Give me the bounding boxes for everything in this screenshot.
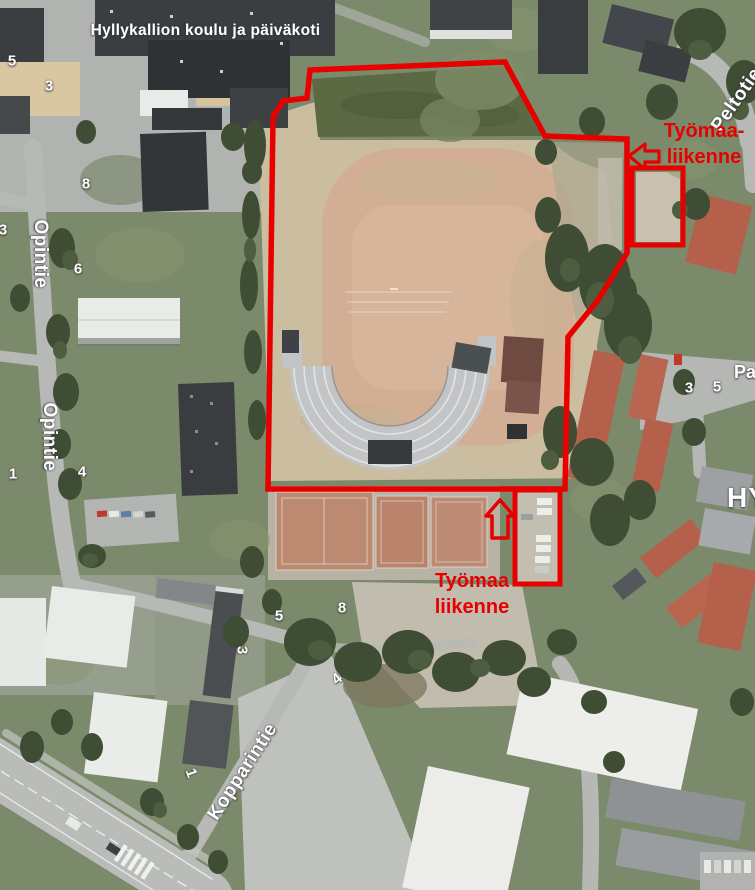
site-boundary-outline [268, 62, 627, 489]
staging-area-outline [632, 168, 683, 245]
construction-annotations [0, 0, 755, 890]
arrow-left-icon [629, 144, 659, 169]
arrow-up-icon [486, 500, 514, 538]
parking-area-outline [515, 490, 560, 584]
aerial-map: Hyllykallion koulu ja päiväkoti Opintie … [0, 0, 755, 890]
